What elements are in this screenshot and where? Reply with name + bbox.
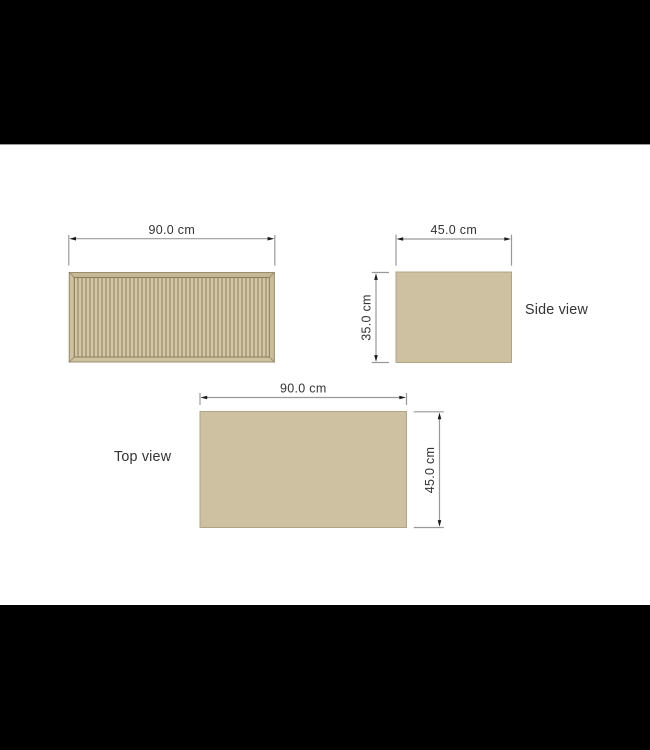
svg-text:35.0 cm: 35.0 cm [360, 294, 374, 341]
svg-text:45.0 cm: 45.0 cm [423, 447, 437, 494]
svg-text:Side view: Side view [525, 302, 588, 318]
svg-text:90.0 cm: 90.0 cm [149, 223, 196, 237]
svg-text:45.0 cm: 45.0 cm [431, 223, 478, 237]
svg-text:90.0 cm: 90.0 cm [280, 381, 327, 395]
svg-text:Top view: Top view [114, 449, 172, 465]
